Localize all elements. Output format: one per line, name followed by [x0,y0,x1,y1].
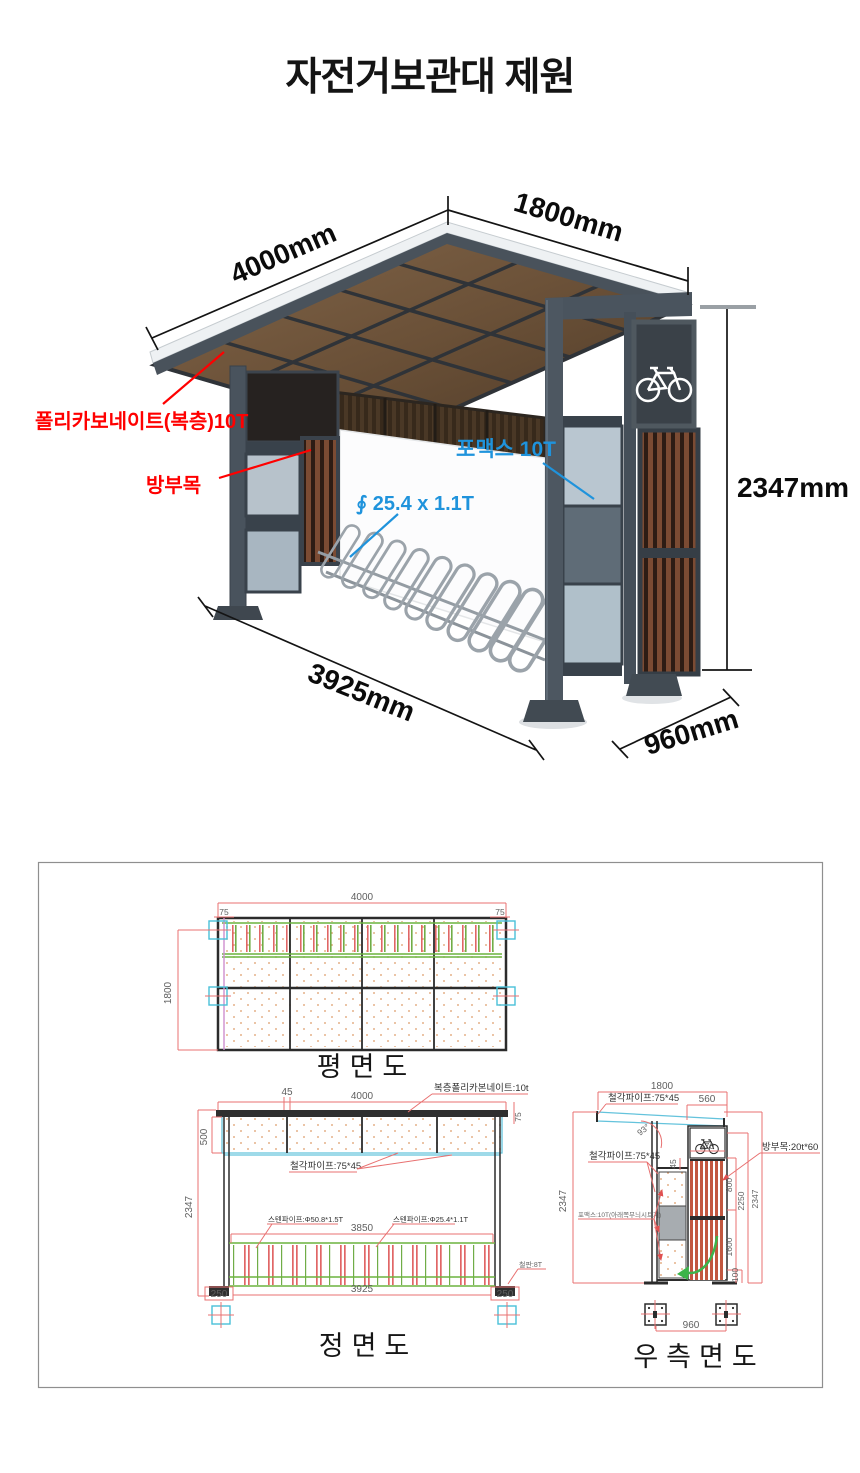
front-dim-base-left: 250 [211,1289,228,1300]
spec-sheet-page: 자전거보관대 제원 [0,0,860,1473]
side-title: 우측면도 [633,1342,764,1372]
cad-drawings: 4000 75 75 1800 평면도 45 4000 복층폴리카본네이트:10… [0,850,860,1410]
front-pipe-large-label: 스텐파이프:Φ50.8*1.5T [268,1214,344,1224]
front-dim-75: 75 [513,1112,523,1122]
side-fomex-label: 포맥스:10T(아래쪽무늬시트지) [578,1210,661,1219]
page-title: 자전거보관대 제원 [0,46,860,102]
side-dim-height-right: 2347 [750,1189,760,1208]
left-column [213,366,338,620]
side-dim-100: 100 [730,1268,740,1282]
front-view: 45 4000 복층폴리카본네이트:10t 75 500 철각파이프:75*45… [184,1083,546,1361]
front-plate-label: 철판:8T [519,1260,543,1269]
front-dim-3850: 3850 [351,1223,374,1234]
pipe-label: ∮ 25.4 x 1.1T [356,493,474,515]
front-dim-span: 3925 [351,1284,374,1295]
front-title: 정면도 [319,1331,418,1361]
side-dim-470: 470 [700,1141,714,1151]
product-photo: 4000mm 1800mm 2347mm 3925mm 960mm 폴리카보네이… [0,150,860,795]
side-dim-45: 45 [668,1159,678,1169]
side-dim-1600: 1600 [724,1237,734,1256]
wood-label: 방부목 [146,474,201,497]
side-dim-800: 800 [724,1178,734,1192]
dim-length-label: 3925mm [304,657,420,728]
side-view: 93° 1800 560 철각파이프:75*45 470 45 방부목:20t*… [558,1081,820,1372]
front-dim-500: 500 [199,1128,210,1145]
plan-dim-75-left: 75 [219,907,229,917]
front-dim-top: 4000 [351,1091,374,1102]
front-roof-label: 복층폴리카본네이트:10t [434,1083,529,1094]
dim-base-label: 960mm [641,703,742,761]
side-frame-left-label: 철각파이프:75*45 [589,1150,660,1162]
side-frame-top-label: 철각파이프:75*45 [608,1092,679,1104]
plan-dim-75-right: 75 [495,907,505,917]
dim-height-label: 2347mm [737,472,849,503]
plan-view: 4000 75 75 1800 평면도 [163,892,519,1082]
front-pipe-small-label: 스텐파이프:Φ25.4*1.1T [393,1214,469,1224]
front-anchor-plates [208,1302,520,1328]
polycarbonate-label: 폴리카보네이트(복층)10T [35,410,248,433]
dim-depth-label: 1800mm [511,186,627,248]
plan-title: 평면도 [317,1052,416,1082]
side-wood-label: 방부목:20t*60 [762,1142,818,1153]
front-dim-45: 45 [281,1087,293,1098]
side-dim-top: 1800 [651,1081,674,1092]
side-angle-label: 93° [635,1122,651,1138]
front-dim-base-right: 250 [497,1289,514,1300]
plan-dim-left: 1800 [163,981,174,1004]
side-dim-height-left: 2347 [558,1189,569,1212]
right-column [519,292,698,729]
side-dim-560: 560 [699,1094,716,1105]
front-dim-height: 2347 [184,1195,195,1218]
front-frame-label: 철각파이프:75*45 [290,1160,361,1172]
side-dim-base: 960 [683,1320,700,1331]
plan-dim-top: 4000 [351,892,374,903]
side-dim-2250: 2250 [736,1191,746,1210]
fomex-label: 포맥스 10T [456,438,556,461]
